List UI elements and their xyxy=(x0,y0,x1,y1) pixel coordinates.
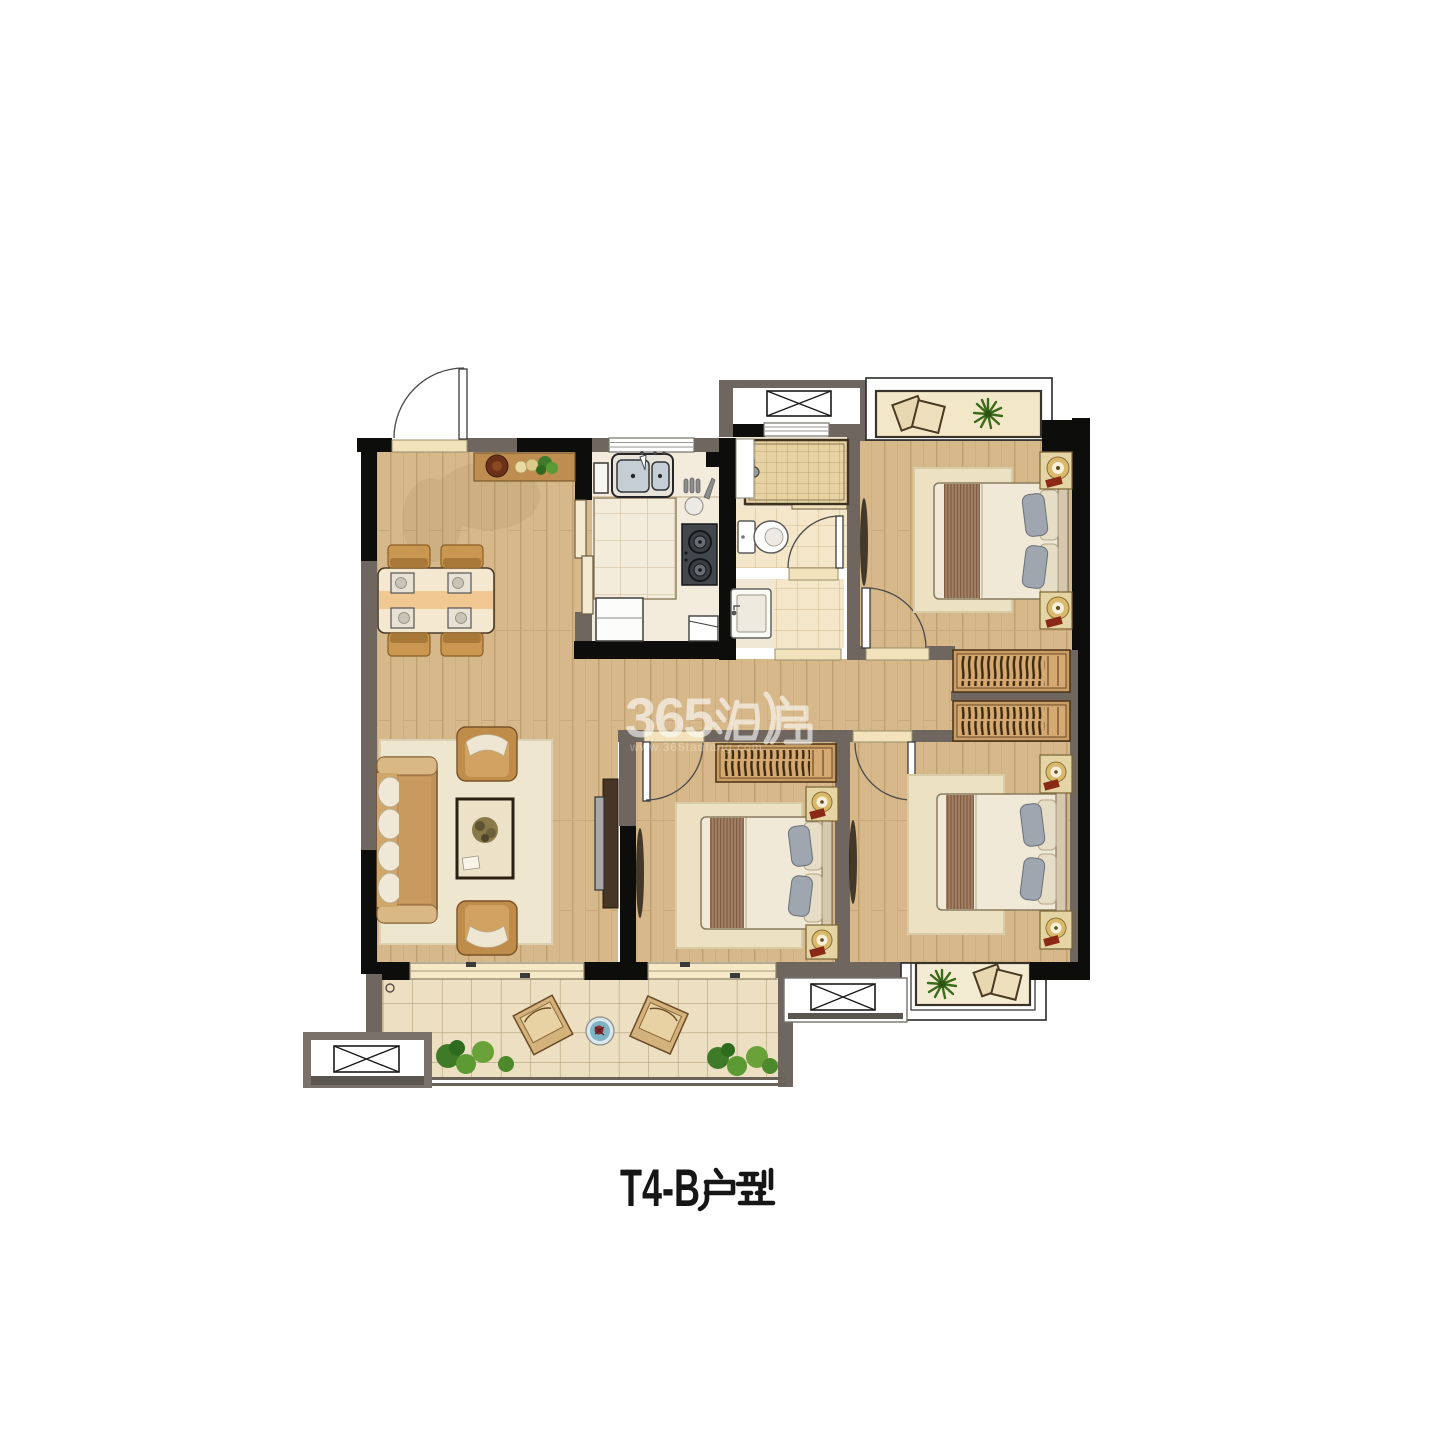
svg-text:T4-B: T4-B xyxy=(620,1159,700,1218)
svg-text:www.365taofang.com: www.365taofang.com xyxy=(629,740,763,754)
